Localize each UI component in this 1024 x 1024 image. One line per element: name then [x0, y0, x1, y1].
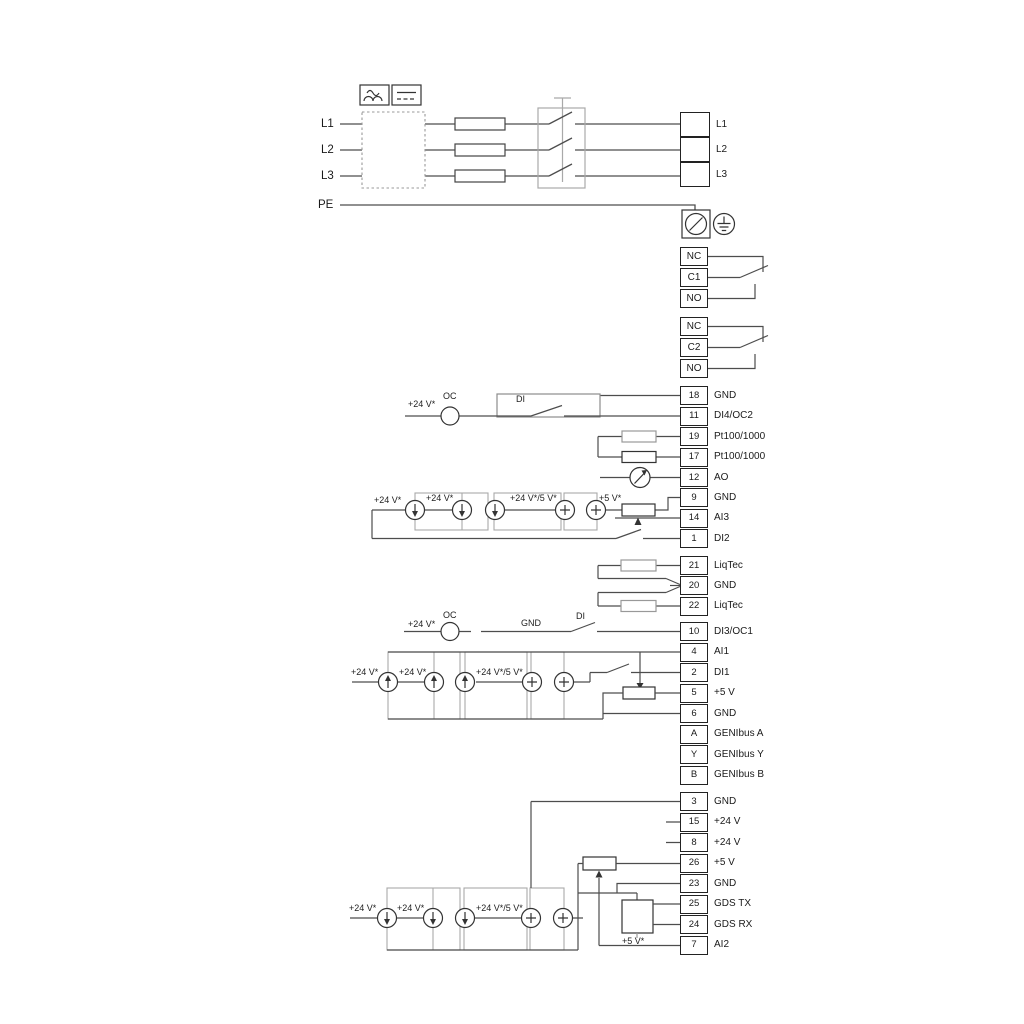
annotation-label: +24 V*	[408, 399, 435, 409]
annotation-label: +24 V*	[408, 619, 435, 629]
io-terminal-label: DI4/OC2	[714, 410, 753, 422]
io-terminal-pin: 21	[680, 556, 708, 575]
io-terminal-pin: 1	[680, 529, 708, 548]
io-terminal-pin: A	[680, 725, 708, 744]
io-terminal-pin: Y	[680, 745, 708, 764]
power-input-label: L1	[321, 117, 334, 132]
io-terminal-label: DI1	[714, 667, 730, 679]
annotation-label: +24 V*/5 V*	[510, 493, 557, 503]
io-terminal-label: GND	[714, 708, 736, 720]
io-terminal-label: LiqTec	[714, 560, 743, 572]
io-terminal-label: +24 V	[714, 837, 740, 849]
io-terminal-label: +5 V	[714, 687, 735, 699]
power-output-terminal	[680, 137, 710, 162]
relay-terminal: NO	[680, 289, 708, 308]
io-terminal-label: GND	[714, 580, 736, 592]
power-output-label: L3	[716, 169, 727, 181]
io-terminal-label: GDS RX	[714, 919, 752, 931]
annotation-label: OC	[443, 610, 457, 620]
io-terminal-label: LiqTec	[714, 600, 743, 612]
io-terminal-label: +5 V	[714, 857, 735, 869]
relay-terminal: NC	[680, 317, 708, 336]
io-terminal-pin: 23	[680, 874, 708, 893]
wiring-diagram-canvas: L1L2L3PEL1L2L3NCC1NONCC2NO18GND11DI4/OC2…	[0, 0, 1024, 1024]
annotation-label: +24 V*	[349, 903, 376, 913]
power-output-terminal	[680, 162, 710, 187]
io-terminal-label: DI3/OC1	[714, 626, 753, 638]
io-terminal-label: GND	[714, 878, 736, 890]
io-terminal-pin: 6	[680, 704, 708, 723]
annotation-label: DI	[516, 394, 525, 404]
io-terminal-label: Pt100/1000	[714, 431, 765, 443]
annotation-label: DI	[576, 611, 585, 621]
power-input-label: L2	[321, 143, 334, 158]
annotation-label: +24 V*	[351, 667, 378, 677]
io-terminal-pin: 19	[680, 427, 708, 446]
io-terminal-pin: 14	[680, 509, 708, 528]
io-terminal-pin: 4	[680, 643, 708, 662]
annotation-label: +24 V*	[426, 493, 453, 503]
annotation-label: GND	[521, 618, 541, 628]
power-output-label: L2	[716, 144, 727, 156]
io-terminal-label: AI3	[714, 512, 729, 524]
io-terminal-pin: 15	[680, 813, 708, 832]
io-terminal-label: AI1	[714, 646, 729, 658]
relay-terminal: NO	[680, 359, 708, 378]
relay-terminal: C2	[680, 338, 708, 357]
io-terminal-pin: 5	[680, 684, 708, 703]
io-terminal-pin: 12	[680, 468, 708, 487]
io-terminal-pin: 2	[680, 663, 708, 682]
io-terminal-label: +24 V	[714, 816, 740, 828]
io-terminal-label: GENIbus A	[714, 728, 763, 740]
relay-terminal: C1	[680, 268, 708, 287]
annotation-label: +5 V*	[622, 936, 644, 946]
annotation-label: +24 V*	[374, 495, 401, 505]
power-output-label: L1	[716, 119, 727, 131]
io-terminal-pin: 20	[680, 576, 708, 595]
io-terminal-pin: 11	[680, 407, 708, 426]
io-terminal-pin: 22	[680, 597, 708, 616]
io-terminal-pin: 26	[680, 854, 708, 873]
io-terminal-pin: 3	[680, 792, 708, 811]
power-input-label: L3	[321, 169, 334, 184]
io-terminal-pin: 25	[680, 895, 708, 914]
labels-overlay: L1L2L3PEL1L2L3NCC1NONCC2NO18GND11DI4/OC2…	[0, 0, 1024, 1024]
io-terminal-label: GENIbus B	[714, 769, 764, 781]
relay-terminal: NC	[680, 247, 708, 266]
io-terminal-label: AO	[714, 472, 728, 484]
io-terminal-label: GDS TX	[714, 898, 751, 910]
io-terminal-pin: 10	[680, 622, 708, 641]
io-terminal-label: GND	[714, 796, 736, 808]
annotation-label: +24 V*	[397, 903, 424, 913]
io-terminal-pin: 18	[680, 386, 708, 405]
annotation-label: +24 V*	[399, 667, 426, 677]
annotation-label: +5 V*	[599, 493, 621, 503]
io-terminal-pin: 9	[680, 488, 708, 507]
io-terminal-pin: B	[680, 766, 708, 785]
io-terminal-label: GND	[714, 390, 736, 402]
io-terminal-label: GENIbus Y	[714, 749, 764, 761]
io-terminal-pin: 24	[680, 915, 708, 934]
io-terminal-label: DI2	[714, 533, 730, 545]
annotation-label: +24 V*/5 V*	[476, 667, 523, 677]
io-terminal-pin: 17	[680, 448, 708, 467]
annotation-label: +24 V*/5 V*	[476, 903, 523, 913]
io-terminal-label: AI2	[714, 939, 729, 951]
annotation-label: OC	[443, 391, 457, 401]
io-terminal-pin: 8	[680, 833, 708, 852]
power-output-terminal	[680, 112, 710, 137]
io-terminal-label: GND	[714, 492, 736, 504]
io-terminal-label: Pt100/1000	[714, 451, 765, 463]
io-terminal-pin: 7	[680, 936, 708, 955]
power-input-label: PE	[318, 198, 333, 213]
